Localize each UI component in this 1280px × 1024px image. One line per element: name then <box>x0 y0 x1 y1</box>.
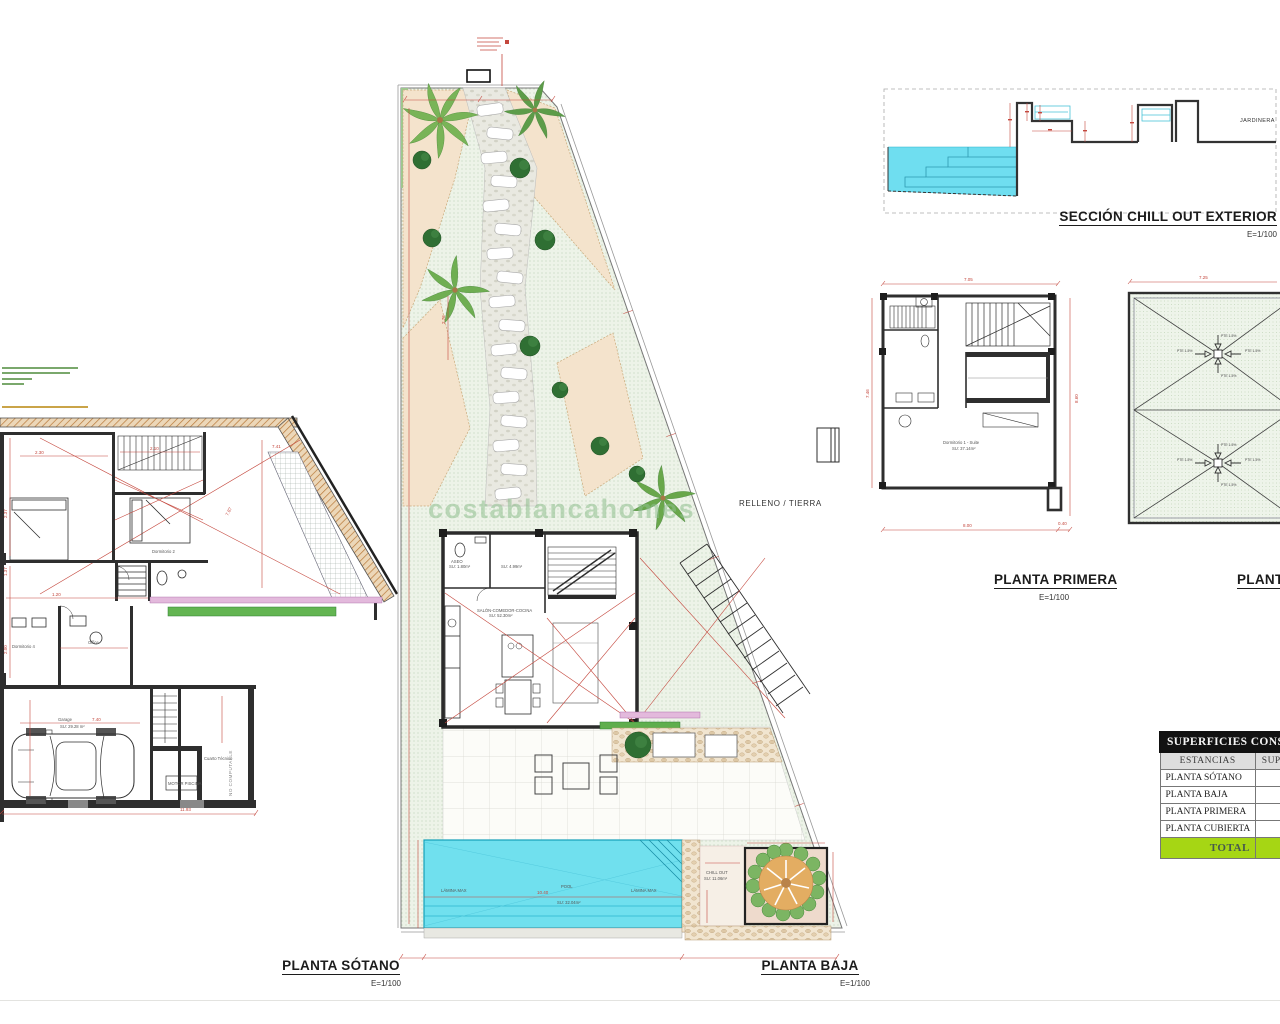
stone-band-bottom <box>685 926 831 940</box>
chill-out-tree <box>745 843 827 924</box>
planta-baja-title-block: PLANTA BAJA E=1/100 <box>750 958 870 991</box>
planta-baja-scale: E=1/100 <box>750 976 870 991</box>
row-value <box>1255 821 1280 838</box>
watermark: costablancahomes <box>428 494 695 525</box>
dim: 7.25 <box>1199 275 1208 280</box>
upper-stair <box>118 436 202 470</box>
dim: 0.40 <box>1058 521 1067 526</box>
planter-tree <box>625 732 651 758</box>
row-label: PLANTA BAJA <box>1160 787 1255 804</box>
planta-sotano-scale: E=1/100 <box>281 976 401 991</box>
label-aseo-area: SU: 1.80m² <box>449 564 471 569</box>
room-label-no-computable: NO COMPUTABLE <box>228 750 233 796</box>
svg-text:PTE 1-5%: PTE 1-5% <box>1221 483 1236 487</box>
planter-box <box>653 733 695 757</box>
room-label-motor-piscina: MOTOR PISCINA <box>168 781 202 786</box>
room-label: Dormitorio 1 - Suite <box>943 440 980 445</box>
dim: 2.30 <box>35 450 44 455</box>
seccion-scale: E=1/100 <box>1045 227 1277 242</box>
col-header-estancias: ESTANCIAS <box>1160 752 1255 770</box>
garage-stair <box>153 693 177 743</box>
parapet-column <box>1048 488 1061 510</box>
dim: 2.00 <box>3 645 8 654</box>
bed-furniture <box>10 498 190 644</box>
col-header-superficie: SUP. CON <box>1255 752 1280 770</box>
pink-strip <box>620 712 700 718</box>
svg-text:PTE 1-5%: PTE 1-5% <box>1177 349 1192 353</box>
seccion-title: SECCIÓN CHILL OUT EXTERIOR <box>1059 209 1277 226</box>
table-row: PLANTA CUBIERTA <box>1160 821 1280 838</box>
dim: 7.46 <box>865 389 870 398</box>
row-value: 57 <box>1255 804 1280 821</box>
dim: 2.10 <box>150 446 159 451</box>
green-annotation-notes <box>2 368 78 384</box>
svg-text:PTE 1-5%: PTE 1-5% <box>1245 458 1260 462</box>
seccion-title-block: SECCIÓN CHILL OUT EXTERIOR E=1/100 <box>1045 209 1277 242</box>
room-label-garage-area: SU: 29.28 m² <box>60 724 85 729</box>
label-pool: POOL <box>561 884 573 889</box>
dim: 8.60 <box>1074 394 1079 403</box>
red-marker <box>505 40 509 44</box>
dim: 7.05 <box>964 277 973 282</box>
row-label: PLANTA SÓTANO <box>1160 770 1255 787</box>
table-row: PLANTA BAJA 57 <box>1160 787 1280 804</box>
label-hall-area: SU: 4.99m² <box>501 564 523 569</box>
dim: 7.40 <box>92 717 101 722</box>
table-row: PLANTA SÓTANO 164 <box>1160 770 1280 787</box>
pool <box>424 840 682 928</box>
section-pool <box>888 147 1017 196</box>
table-row: PLANTA PRIMERA 57 <box>1160 804 1280 821</box>
stone-band-pool <box>682 840 700 932</box>
label-chill-out-area: SU: 11.06m² <box>704 876 728 881</box>
wall-pilaster <box>68 800 88 808</box>
entry-gate <box>467 70 490 82</box>
label-jardinera: JARDINERA <box>1240 118 1275 124</box>
room-label-dorm4: Dormitorio 4 <box>12 644 35 649</box>
row-label: PLANTA CUBIERTA <box>1160 821 1255 838</box>
label-lamina-right: LÁMINA MAX <box>631 888 657 893</box>
dim: 7.41 <box>272 444 281 449</box>
dim: 2.37 <box>3 509 8 518</box>
planta-baja-title: PLANTA BAJA <box>761 958 858 975</box>
planta-cubierta-title: PLANTA C <box>1237 572 1280 589</box>
room-label-office: Office <box>88 640 100 645</box>
planta-cubierta-drawing: 7.25 8.00 PTE 1-5%PTE 1-5% PTE 1-5%PTE 1… <box>1125 265 1280 565</box>
drawing-sheet: 2.30 2.37 2.10 7.87 7.41 1.37 2.00 1.20 … <box>0 0 1280 1024</box>
row-value: 57 <box>1255 787 1280 804</box>
row-value: 164 <box>1255 770 1280 787</box>
superficies-table: SUPERFICIES CONSTRU ESTANCIAS SUP. CON P… <box>1159 731 1280 859</box>
dim: 11.93 <box>180 807 191 812</box>
planta-cubierta-title-block: PLANTA C <box>1237 572 1280 589</box>
planta-sotano-title-block: PLANTA SÓTANO E=1/100 <box>281 958 401 991</box>
pool-deck <box>424 928 682 938</box>
label-chill-out: CHILL OUT <box>706 870 728 875</box>
svg-text:PTE 1-5%: PTE 1-5% <box>1221 334 1236 338</box>
pink-strip <box>150 597 382 603</box>
row-label: PLANTA PRIMERA <box>1160 804 1255 821</box>
table-total-row: TOTAL <box>1160 838 1280 859</box>
roof-drain <box>1214 350 1222 358</box>
label-lamina-left: LÁMINA MAX <box>441 888 467 893</box>
total-value <box>1255 838 1280 859</box>
total-label: TOTAL <box>1160 838 1255 859</box>
room-label-dorm2: Dormitorio 2 <box>152 549 175 554</box>
dim: 8.00 <box>963 523 972 528</box>
legend-box <box>817 428 839 462</box>
roof-drain <box>1214 459 1222 467</box>
dim: 1.37 <box>3 567 8 576</box>
planta-primera-drawing: 7.05 7.46 8.60 8.00 0.40 4.43 3.41 2.06 <box>858 268 1120 568</box>
green-strip <box>168 607 336 616</box>
svg-text:PTE 1-5%: PTE 1-5% <box>1245 349 1260 353</box>
room-area: SU: 37.14m² <box>952 446 976 451</box>
planta-primera-title: PLANTA PRIMERA <box>994 572 1117 589</box>
svg-text:PTE 1-5%: PTE 1-5% <box>1221 374 1236 378</box>
sheet-divider-line <box>0 1000 1280 1001</box>
table-title: SUPERFICIES CONSTRU <box>1160 732 1280 752</box>
planta-sotano-title: PLANTA SÓTANO <box>282 958 400 975</box>
label-salon-area: SU: 52.30m² <box>489 613 513 618</box>
planta-sotano-drawing: 2.30 2.37 2.10 7.87 7.41 1.37 2.00 1.20 … <box>0 348 398 978</box>
dim: 7.87 <box>224 506 233 517</box>
planta-primera-scale: E=1/100 <box>994 590 1114 605</box>
label-relleno-tierra: RELLENO / TIERRA <box>739 499 822 508</box>
planta-primera-title-block: PLANTA PRIMERA E=1/100 <box>994 572 1114 605</box>
planter-box <box>705 735 737 757</box>
svg-text:PTE 1-5%: PTE 1-5% <box>1221 443 1236 447</box>
label-pool-area: SU: 32.04m² <box>557 900 581 905</box>
dim: 2.76 <box>441 315 446 324</box>
dim: 1.20 <box>52 592 61 597</box>
roof-outline <box>1129 293 1280 523</box>
svg-text:PTE 1-5%: PTE 1-5% <box>1177 458 1192 462</box>
dim: 10.40 <box>537 890 549 895</box>
room-label-garage: Garage <box>58 717 73 722</box>
